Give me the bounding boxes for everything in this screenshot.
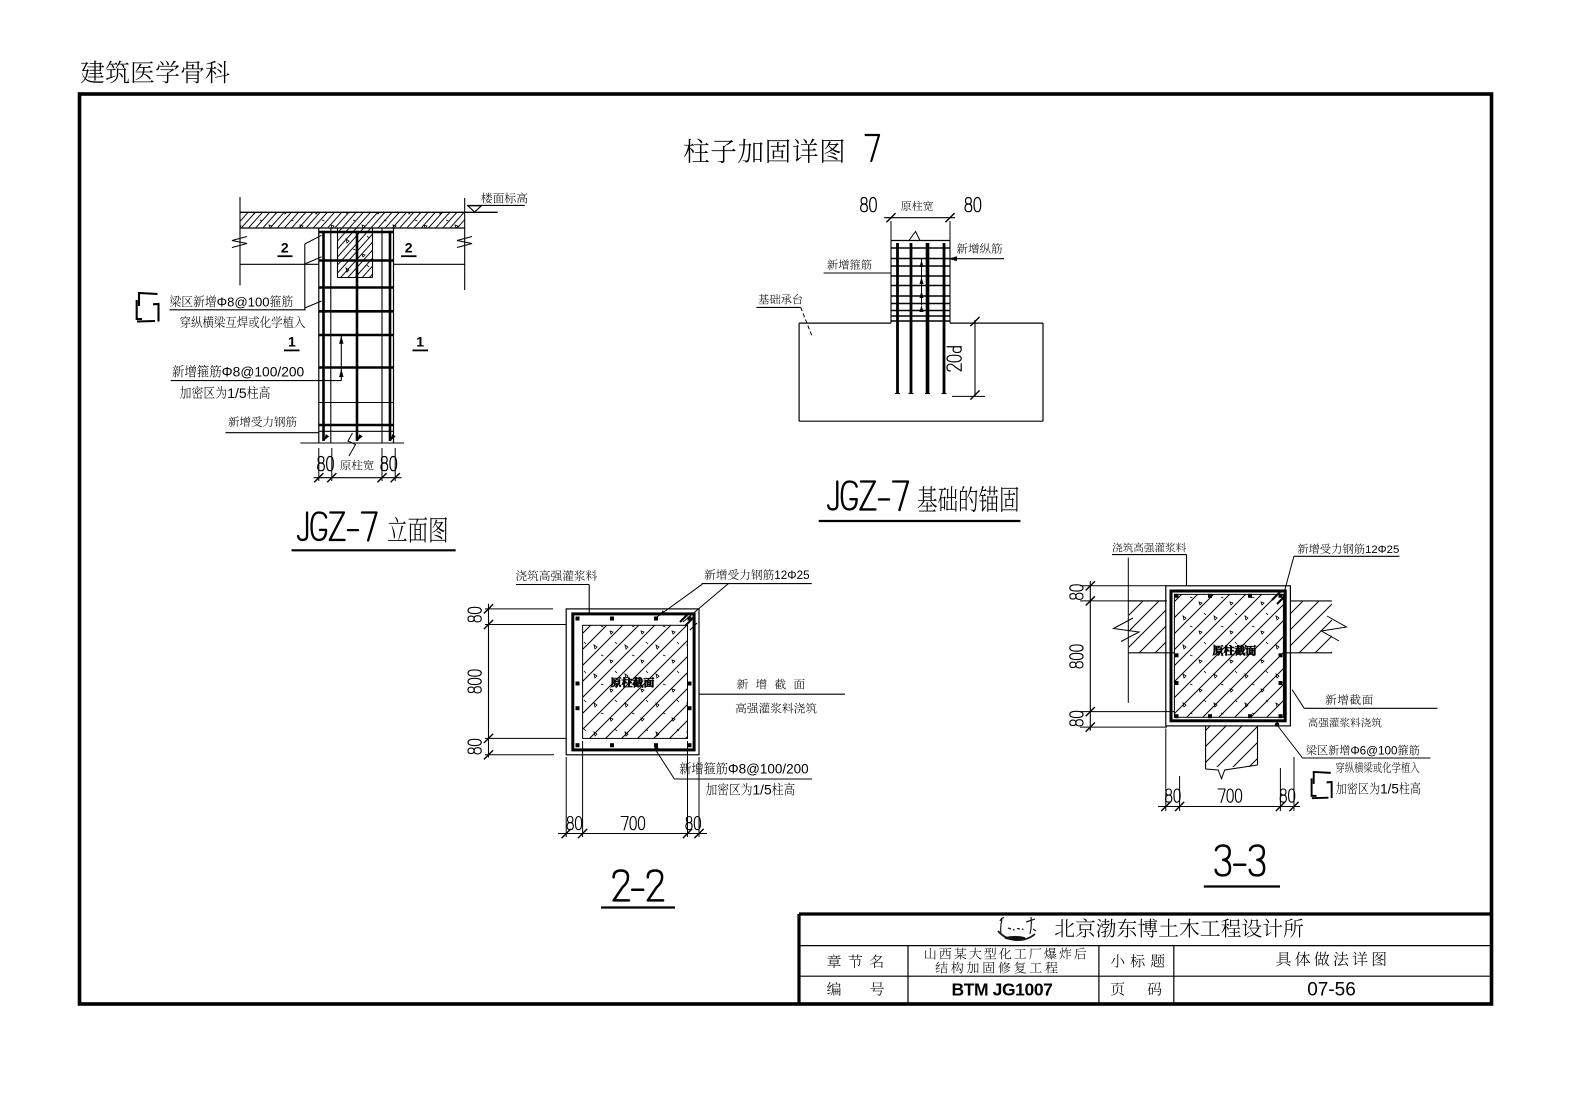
svg-text:2: 2: [281, 240, 289, 256]
svg-text:Φ8@100/200: Φ8@100/200: [222, 365, 305, 380]
svg-text:1/5: 1/5: [753, 783, 773, 798]
svg-text:Φ6@100: Φ6@100: [1350, 745, 1398, 758]
svg-text:Φ8@100/200: Φ8@100/200: [728, 762, 809, 777]
svg-text:07-56: 07-56: [1307, 980, 1356, 1001]
svg-text:BTM JG1007: BTM JG1007: [951, 980, 1052, 1000]
svg-text:12Φ25: 12Φ25: [774, 569, 810, 582]
svg-text:1/5: 1/5: [227, 385, 247, 401]
svg-text:1: 1: [288, 334, 296, 350]
svg-text:1: 1: [416, 334, 424, 350]
svg-text:Φ8@100: Φ8@100: [217, 294, 270, 309]
svg-text:1/5: 1/5: [1380, 782, 1399, 797]
svg-text:2: 2: [405, 240, 413, 256]
svg-text:12Φ25: 12Φ25: [1365, 544, 1399, 556]
